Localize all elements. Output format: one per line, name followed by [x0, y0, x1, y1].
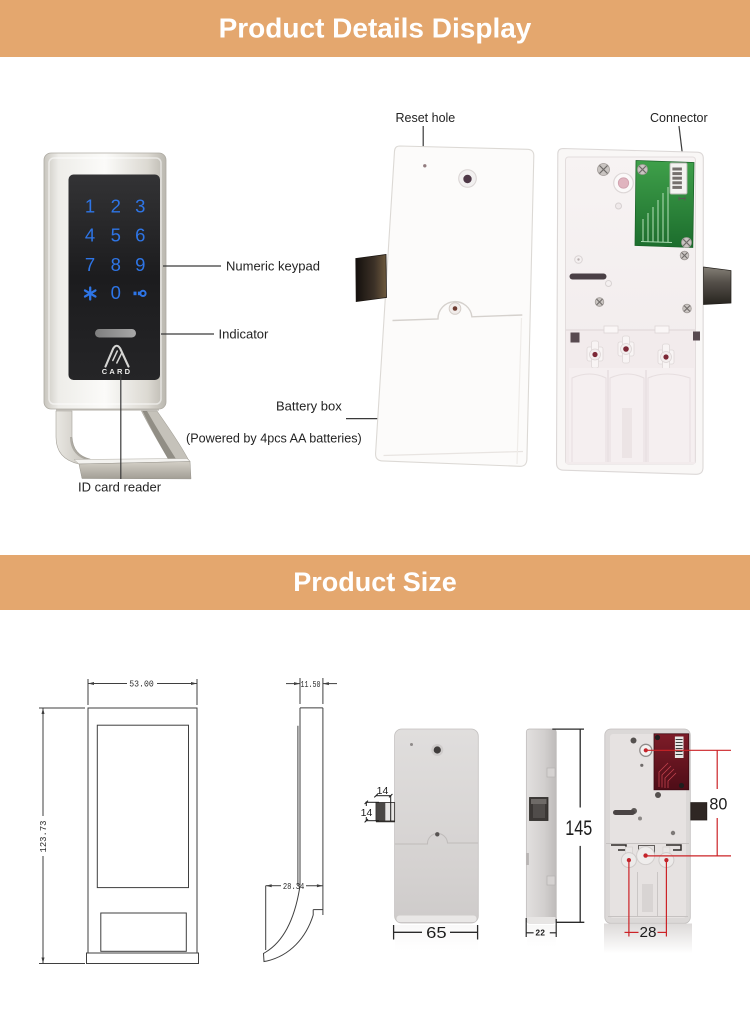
- svg-text:1: 1: [85, 196, 95, 217]
- svg-text:7: 7: [85, 254, 95, 275]
- svg-text:0: 0: [111, 282, 121, 303]
- svg-text:4: 4: [85, 225, 95, 246]
- svg-text:22: 22: [535, 927, 545, 938]
- svg-text:80: 80: [709, 794, 727, 813]
- svg-text:Reset hole: Reset hole: [396, 111, 456, 125]
- svg-text:Connector: Connector: [650, 111, 708, 125]
- svg-text:8: 8: [111, 254, 121, 275]
- svg-text:Indicator: Indicator: [219, 327, 270, 342]
- svg-text:3: 3: [135, 196, 145, 217]
- svg-text:Numeric keypad: Numeric keypad: [226, 259, 320, 274]
- svg-text:5: 5: [111, 225, 121, 246]
- svg-text:53.00: 53.00: [129, 679, 154, 690]
- svg-text:145: 145: [565, 817, 592, 840]
- svg-text:28.34: 28.34: [283, 881, 305, 892]
- svg-text:CARD: CARD: [102, 367, 132, 376]
- svg-text:11.50: 11.50: [301, 679, 321, 690]
- svg-text:9: 9: [135, 254, 145, 275]
- svg-text:2: 2: [111, 196, 121, 217]
- svg-text:ID card reader: ID card reader: [78, 480, 162, 495]
- svg-text:Product Details Display: Product Details Display: [219, 13, 532, 44]
- svg-text:(Powered by 4pcs AA batteries): (Powered by 4pcs AA batteries): [186, 432, 362, 446]
- svg-text:6: 6: [135, 225, 145, 246]
- svg-text:Battery box: Battery box: [276, 399, 342, 414]
- svg-text:123.73: 123.73: [38, 820, 49, 852]
- svg-text:28: 28: [640, 924, 657, 941]
- svg-text:65: 65: [426, 925, 447, 942]
- svg-text:Product Size: Product Size: [293, 567, 457, 597]
- svg-text:14: 14: [361, 807, 373, 819]
